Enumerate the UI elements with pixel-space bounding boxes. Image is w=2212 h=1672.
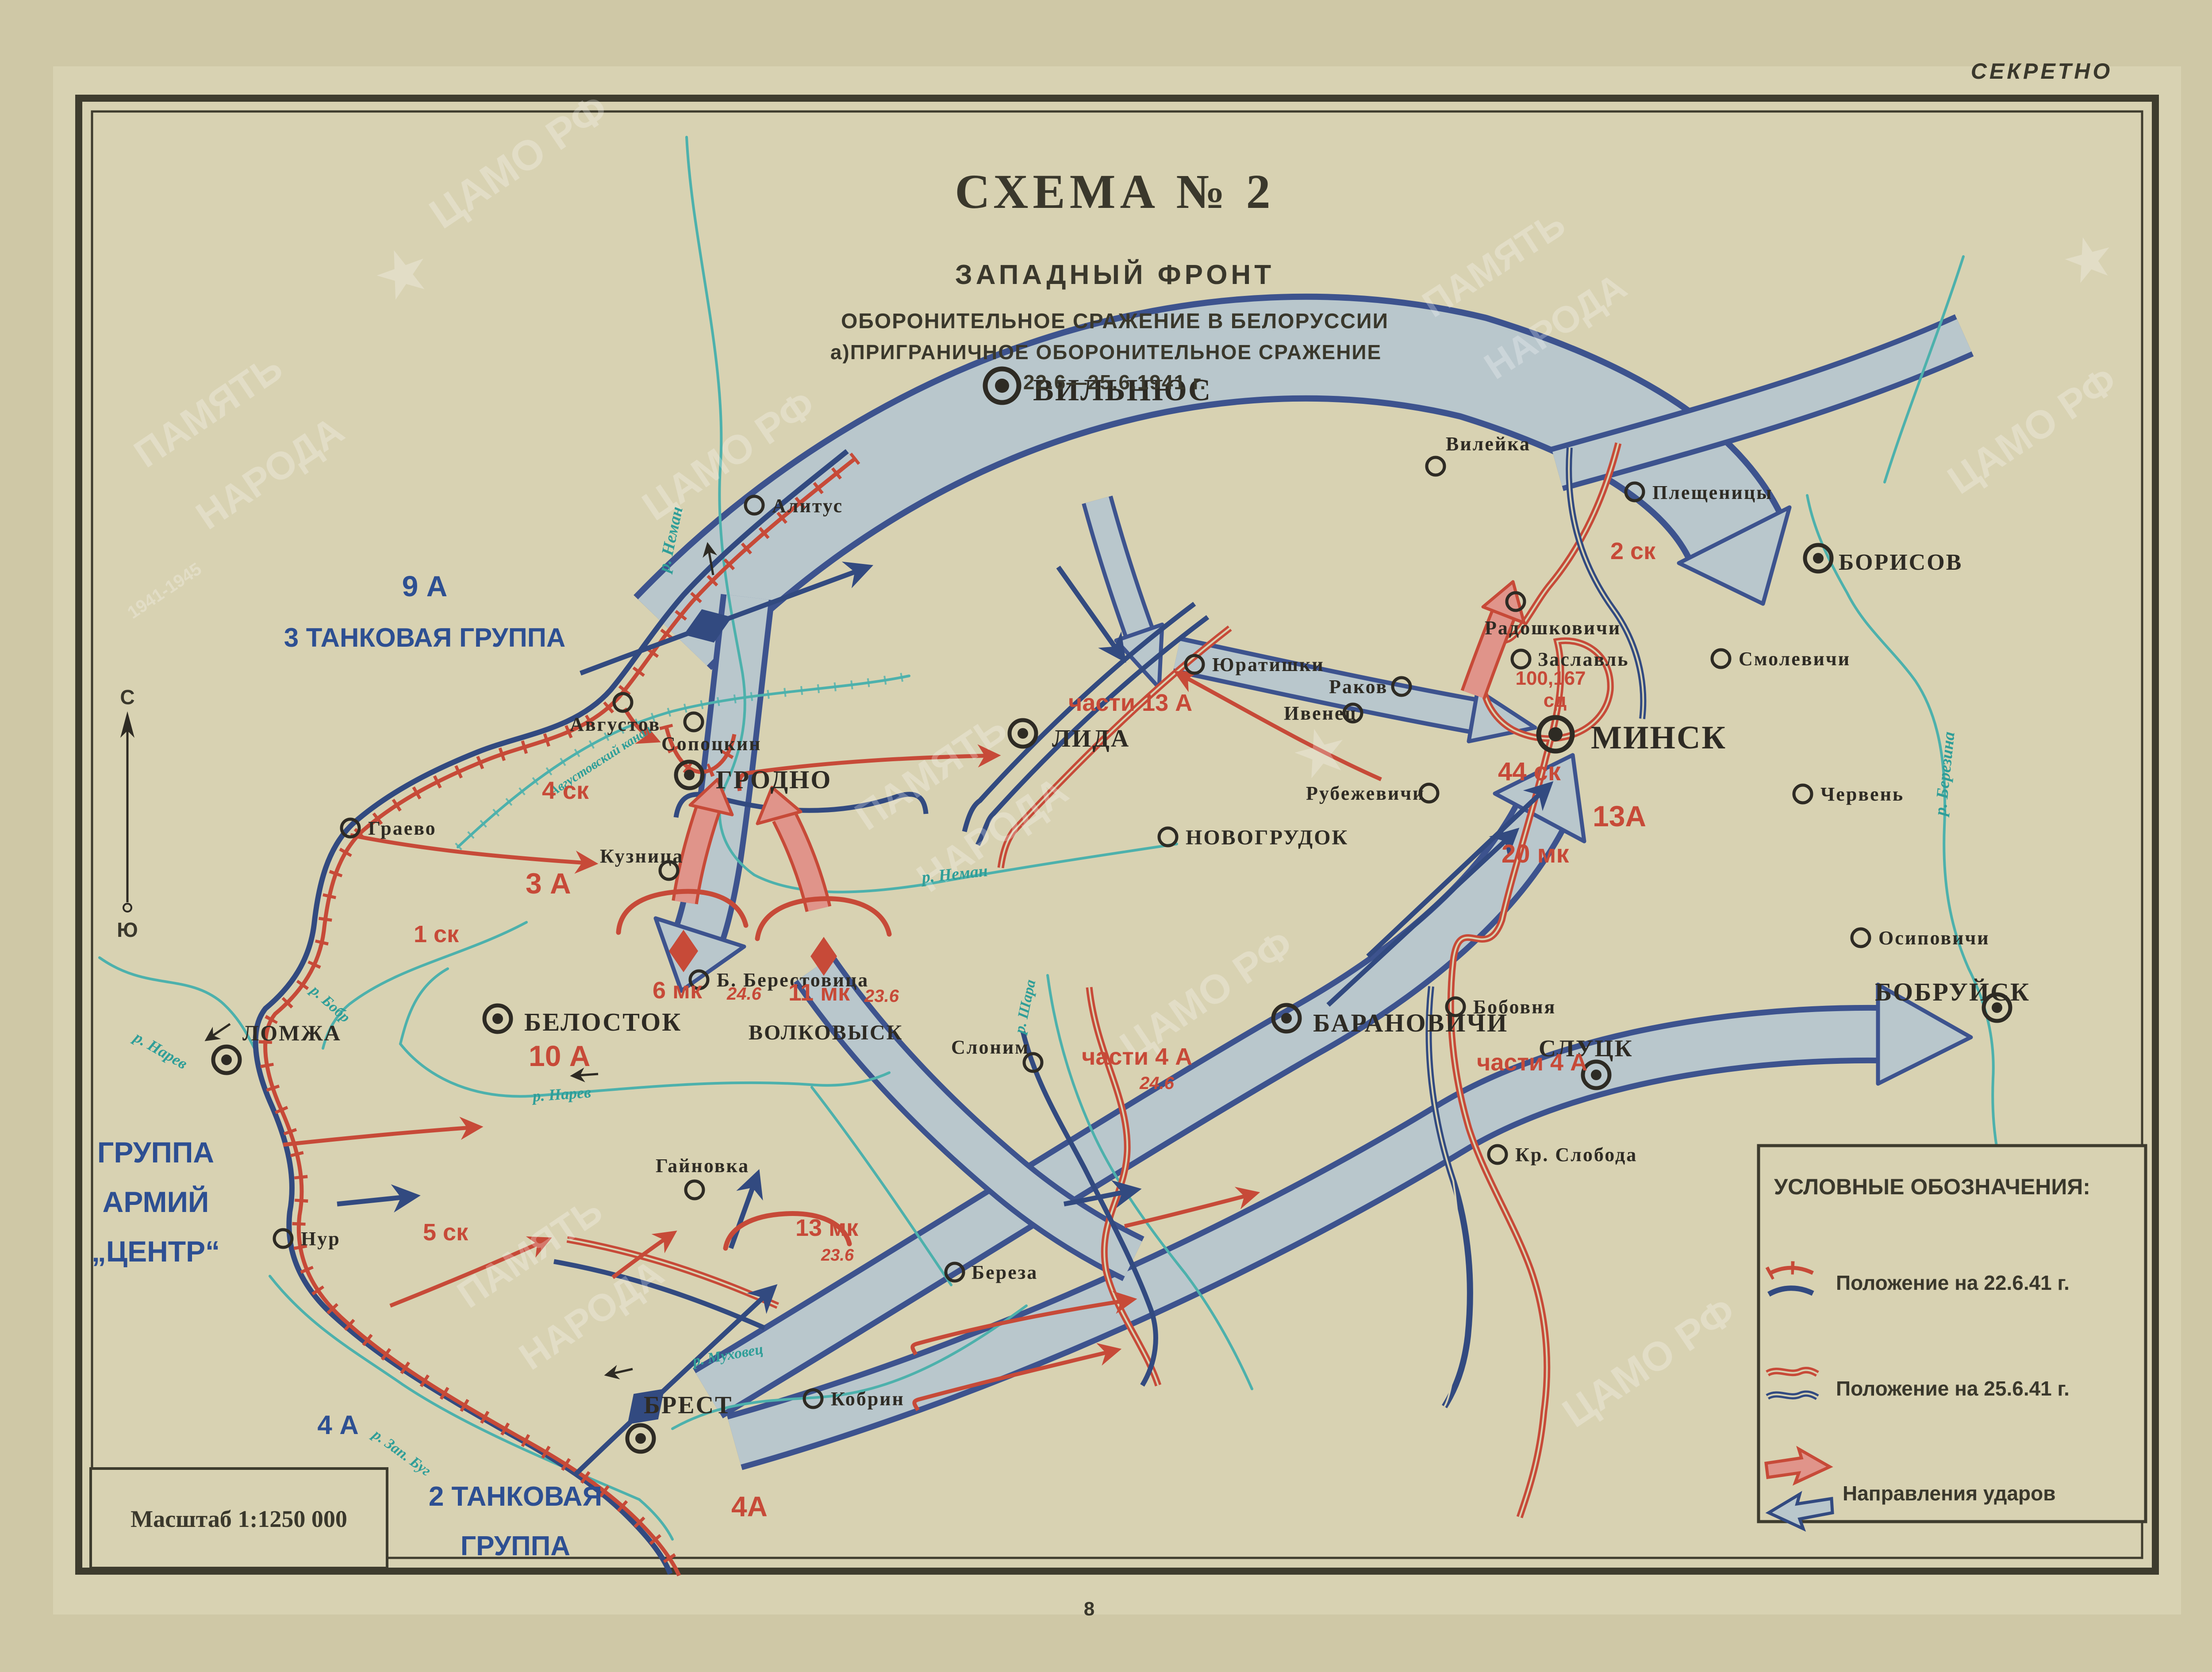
unit-label: 6 мк bbox=[653, 977, 703, 1004]
city-label: Осиповичи bbox=[1878, 927, 1990, 949]
unit-label: 20 мк bbox=[1502, 840, 1570, 868]
city-label: Заславль bbox=[1538, 648, 1629, 670]
city-label: Гайновка bbox=[656, 1155, 749, 1177]
city-marker-inner bbox=[635, 1433, 646, 1444]
unit-label: 3 ТАНКОВАЯ ГРУППА bbox=[284, 623, 565, 652]
unit-label: 10 А bbox=[529, 1039, 590, 1072]
city-label: Юратишки bbox=[1212, 654, 1325, 675]
city-label: Береза bbox=[972, 1262, 1038, 1283]
unit-label: 5 ск bbox=[423, 1219, 469, 1246]
unit-label: 4А bbox=[731, 1491, 768, 1522]
city-label: БРЕСТ bbox=[644, 1392, 733, 1419]
city-Рубежевичи: Рубежевичи bbox=[1306, 782, 1438, 804]
city-label: Слоним bbox=[951, 1036, 1029, 1058]
legend-title: УСЛОВНЫЕ ОБОЗНАЧЕНИЯ: bbox=[1774, 1174, 2090, 1199]
city-label: Смолевичи bbox=[1739, 648, 1851, 670]
map-canvas: ЦАМО РФПАМЯТЬНАРОДАЦАМО РФ★ПАМЯТЬНАРОДАЦ… bbox=[0, 0, 2212, 1672]
unit-label: части 4 А bbox=[1082, 1043, 1192, 1070]
city-label: Вилейка bbox=[1446, 433, 1531, 455]
scale-text: Масштаб 1:1250 000 bbox=[131, 1506, 347, 1532]
city-label: Раков bbox=[1329, 676, 1388, 698]
city-НОВОГРУДОК: НОВОГРУДОК bbox=[1159, 826, 1348, 849]
unit-label: ГРУППА bbox=[461, 1531, 570, 1561]
legend: УСЛОВНЫЕ ОБОЗНАЧЕНИЯ: Положение на 22.6.… bbox=[1759, 1146, 2146, 1529]
unit-label: 3 А bbox=[526, 867, 571, 900]
unit-label: 44 ск bbox=[1498, 757, 1561, 786]
unit-label: 24.6 bbox=[1139, 1074, 1175, 1093]
city-label: БЕЛОСТОК bbox=[524, 1008, 682, 1036]
sub-battle-title: а)ПРИГРАНИЧНОЕ ОБОРОНИТЕЛЬНОЕ СРАЖЕНИЕ bbox=[830, 341, 1382, 364]
unit-label: 4 ск bbox=[542, 776, 589, 804]
city-label: ВОЛКОВЫСК bbox=[749, 1021, 903, 1044]
unit-label: части 13 А bbox=[1068, 690, 1192, 716]
front-title: ЗАПАДНЫЙ ФРОНТ bbox=[955, 259, 1275, 290]
city-marker-inner bbox=[492, 1013, 503, 1024]
city-label: БОБРУЙСК bbox=[1875, 978, 2030, 1006]
city-label: МИНСК bbox=[1591, 720, 1727, 756]
unit-label: 1 ск bbox=[414, 921, 459, 947]
city-label: Радошковичи bbox=[1485, 617, 1621, 639]
legend-strikes-label: Направления ударов bbox=[1843, 1482, 2056, 1505]
unit-label: 9 А bbox=[402, 570, 448, 602]
unit-label: 24.6 bbox=[726, 984, 762, 1004]
city-label: Кр. Слобода bbox=[1515, 1144, 1637, 1166]
unit-label: 2 ск bbox=[1610, 538, 1656, 564]
city-marker-inner bbox=[1591, 1070, 1601, 1080]
city-label: Плещеницы bbox=[1652, 482, 1773, 503]
city-marker-inner bbox=[1281, 1013, 1292, 1024]
unit-label: 23.6 bbox=[864, 986, 899, 1006]
city-label: Алитус bbox=[772, 495, 843, 517]
classification-stamp: СЕКРЕТНО bbox=[1971, 59, 2112, 84]
unit-label: части 4 А bbox=[1477, 1049, 1587, 1076]
city-label: БОРИСОВ bbox=[1839, 550, 1962, 575]
city-label: Кобрин bbox=[831, 1388, 905, 1410]
legend-25-6-label: Положение на 25.6.41 г. bbox=[1836, 1377, 2070, 1400]
scale-box: Масштаб 1:1250 000 bbox=[91, 1469, 387, 1568]
city-label: Рубежевичи bbox=[1306, 782, 1425, 804]
city-label: ГРОДНО bbox=[716, 765, 832, 794]
dates-title: 22.6—25.6.1941 г. bbox=[1023, 371, 1206, 394]
battle-title: ОБОРОНИТЕЛЬНОЕ СРАЖЕНИЕ В БЕЛОРУССИИ bbox=[841, 310, 1389, 333]
city-label: ЛИДА bbox=[1052, 725, 1130, 752]
city-label: Граево bbox=[368, 817, 437, 839]
city-label: Кузница bbox=[600, 845, 684, 867]
unit-label: 100,167 bbox=[1515, 667, 1586, 689]
city-label: Нур bbox=[301, 1228, 341, 1250]
city-label: Ивенец bbox=[1284, 702, 1357, 724]
city-label: Червень bbox=[1820, 783, 1904, 805]
city-Ивенец: Ивенец bbox=[1284, 702, 1362, 724]
city-marker-inner bbox=[1018, 728, 1028, 739]
city-label: Августов bbox=[570, 713, 661, 735]
unit-label: 13А bbox=[1593, 800, 1646, 832]
scanned-map-page: { "classification": "СЕКРЕТНО", "page_nu… bbox=[0, 0, 2212, 1672]
unit-label: ГРУППА bbox=[97, 1136, 214, 1169]
unit-label: 2 ТАНКОВАЯ bbox=[429, 1481, 602, 1512]
city-ВОЛКОВЫСК: ВОЛКОВЫСК bbox=[749, 1021, 903, 1044]
unit-label: 23.6 bbox=[821, 1246, 854, 1265]
compass-north-label: С bbox=[120, 686, 134, 709]
schema-title: СХЕМА № 2 bbox=[955, 165, 1275, 219]
unit-label: 13 мк bbox=[795, 1215, 859, 1241]
city-marker-inner bbox=[221, 1055, 232, 1065]
city-marker-inner bbox=[995, 379, 1009, 393]
city-label: Бобовня bbox=[1473, 996, 1556, 1018]
unit-label: АРМИЙ bbox=[103, 1185, 209, 1218]
city-marker-inner bbox=[684, 770, 695, 780]
unit-label: сд bbox=[1544, 690, 1567, 711]
city-label: ЛОМЖА bbox=[242, 1020, 342, 1045]
unit-label: 11 мк bbox=[788, 979, 850, 1006]
unit-label: 4 А bbox=[317, 1410, 358, 1440]
page-number: 8 bbox=[1084, 1598, 1094, 1620]
city-label: НОВОГРУДОК bbox=[1186, 826, 1348, 849]
unit-label: „ЦЕНТР“ bbox=[92, 1235, 220, 1268]
city-marker-inner bbox=[1813, 553, 1824, 564]
city-marker-inner bbox=[1548, 727, 1563, 741]
city-label: Сопоцкин bbox=[661, 733, 762, 755]
legend-22-6-label: Положение на 22.6.41 г. bbox=[1836, 1271, 2070, 1294]
compass-south-label: Ю bbox=[117, 918, 138, 941]
